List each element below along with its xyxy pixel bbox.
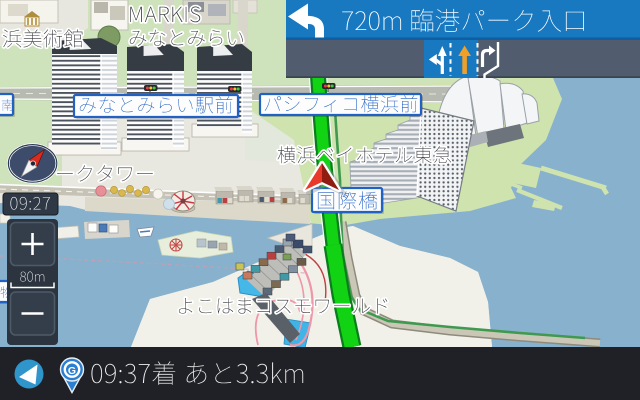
svg-text:G: G	[68, 365, 76, 377]
